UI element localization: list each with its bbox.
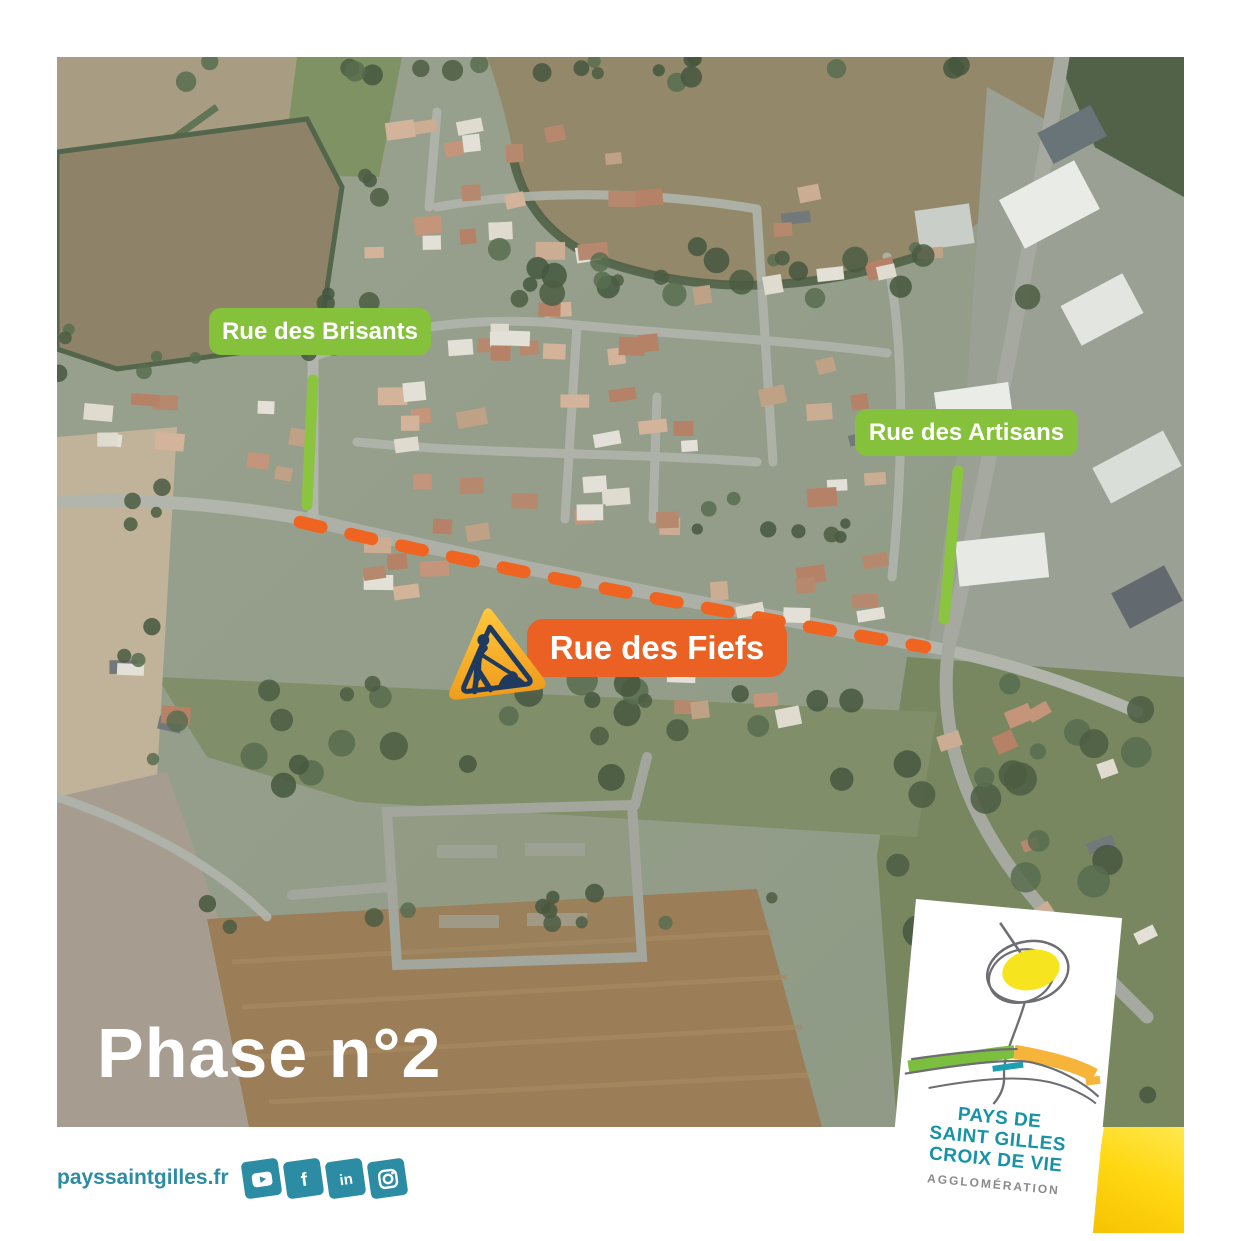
footer: payssaintgilles.fr f in — [57, 1155, 411, 1201]
linkedin-link[interactable]: in — [324, 1157, 366, 1199]
sun-sketch-icon — [967, 921, 1080, 1110]
social-links: f in — [243, 1160, 411, 1197]
instagram-icon — [374, 1164, 401, 1191]
youtube-link[interactable] — [240, 1157, 282, 1199]
street-label-fiefs-text: Rue des Fiefs — [550, 629, 765, 667]
agglo-logo-card: PAYS DE SAINT GILLES CROIX DE VIE AGGLOM… — [886, 899, 1123, 1241]
street-label-brisants-text: Rue des Brisants — [222, 318, 418, 346]
street-label-artisans: Rue des Artisans — [855, 409, 1078, 456]
linkedin-icon: in — [332, 1164, 359, 1191]
roadworks-warning-icon — [436, 600, 551, 706]
street-label-fiefs: Rue des Fiefs — [527, 619, 787, 677]
facebook-link[interactable]: f — [282, 1157, 324, 1199]
poster: Rue des Brisants Rue des Artisans Rue de… — [0, 0, 1241, 1241]
instagram-link[interactable] — [366, 1157, 408, 1199]
agglo-logo-art — [898, 899, 1123, 1117]
youtube-icon — [248, 1164, 275, 1191]
svg-text:in: in — [337, 1170, 353, 1189]
street-label-artisans-text: Rue des Artisans — [869, 419, 1064, 447]
street-highlight-artisans — [944, 471, 958, 619]
street-label-brisants: Rue des Brisants — [209, 308, 431, 355]
facebook-icon: f — [290, 1164, 317, 1191]
svg-text:f: f — [299, 1169, 309, 1191]
street-highlight-brisants — [307, 380, 313, 505]
phase-label: Phase n°2 — [97, 1017, 441, 1091]
website-link[interactable]: payssaintgilles.fr — [57, 1166, 229, 1190]
